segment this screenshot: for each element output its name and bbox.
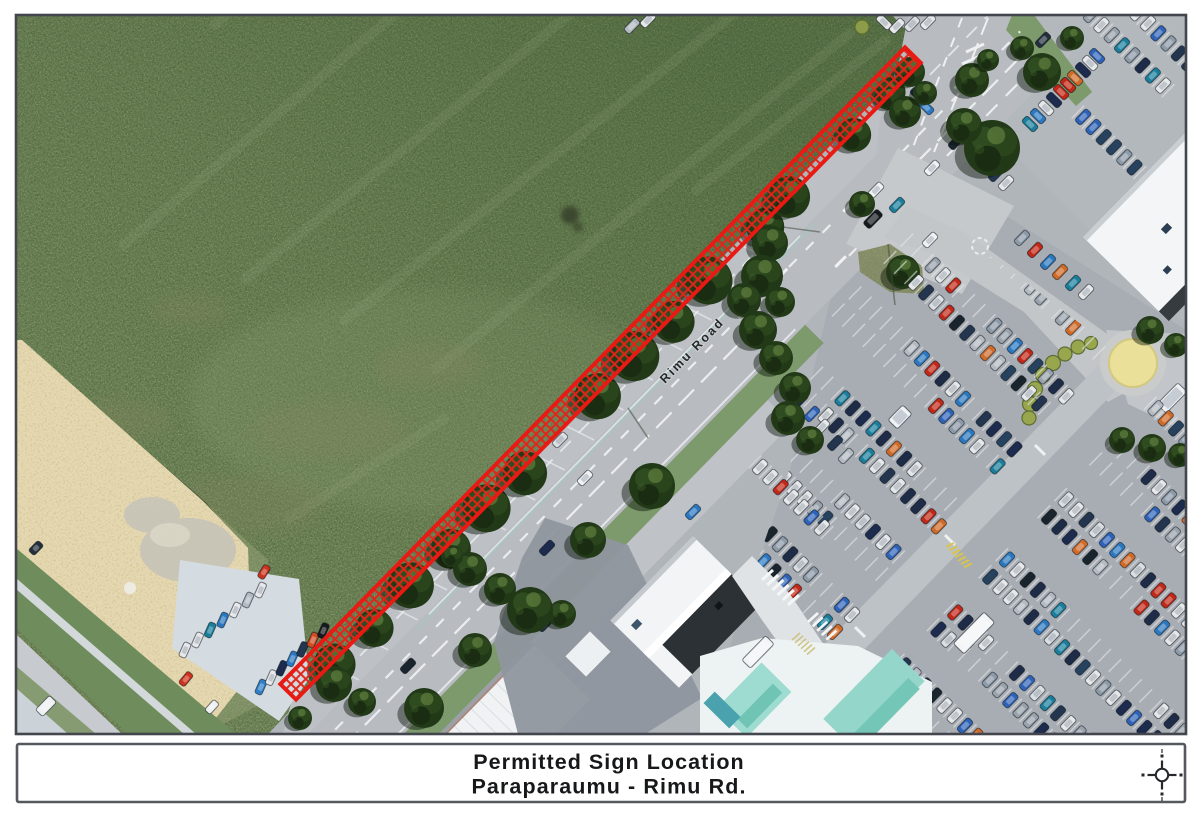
svg-text:Paraparaumu - Rimu Rd.: Paraparaumu - Rimu Rd. (471, 775, 746, 799)
svg-text:Permitted Sign Location: Permitted Sign Location (473, 750, 744, 774)
